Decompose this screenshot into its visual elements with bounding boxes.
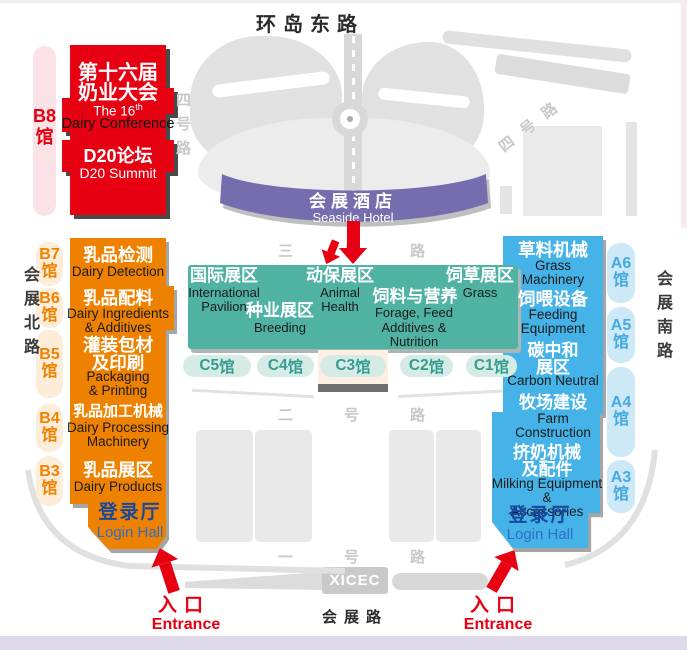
east-carbon-neutral-en: Carbon Neutral (496, 374, 610, 389)
west-dairy-products-zh: 乳品展区 (70, 461, 166, 480)
east-farm-construction-zh: 牧场建设 (503, 394, 603, 413)
road-label-south: 会展路 (322, 606, 388, 627)
c3-annex-base (318, 384, 388, 392)
east-feeding-equipment-en: Feeding Equipment (503, 308, 603, 336)
road-label-no1: 一号路 (278, 546, 476, 567)
hall-pill-c4: C4馆 (257, 355, 314, 377)
entrance-right-zh: 入口 (458, 596, 534, 617)
west-dairy-products-en: Dairy Products (64, 480, 172, 495)
west-login-hall-en: Login Hall (90, 525, 170, 542)
zone-forage-en: Forage, Feed Additives & Nutrition (368, 306, 460, 350)
hall-pill-c3: C3馆 (320, 355, 386, 377)
zone-forage-zh: 饲料与营养 (372, 288, 458, 307)
zone-animal-health-zh: 动保展区 (306, 267, 374, 286)
road-label-no3: 三号路 (278, 240, 476, 261)
conference-title-zh-2: 奶业大会 (70, 82, 166, 104)
summit-title-en: D20 Summit (70, 166, 166, 181)
hotel-name-zh: 会展酒店 (281, 193, 425, 212)
east-farm-construction-en: Farm Construction (503, 412, 603, 440)
east-carbon-neutral-zh: 碳中和 展区 (503, 342, 603, 376)
summit-title-zh: D20论坛 (70, 147, 166, 167)
east-milking-zh: 挤奶机械 及配件 (494, 444, 600, 478)
hotel-arrow-big-icon (339, 221, 367, 264)
conference-title-zh-1: 第十六届 (70, 62, 166, 84)
hall-pill-c5: C5馆 (183, 355, 251, 377)
zone-breeding-zh: 种业展区 (246, 302, 314, 321)
hall-pill-a3: A3馆 (607, 460, 635, 513)
hall-pill-b4: B4馆 (36, 404, 63, 452)
west-processing-en: Dairy Processing Machinery (64, 421, 172, 449)
entrance-left-en: Entrance (140, 616, 232, 634)
east-grass-machinery-en: Grass Machinery (503, 259, 603, 287)
entrance-right-en: Entrance (452, 616, 544, 634)
zone-international-zh: 国际展区 (189, 267, 259, 286)
west-dairy-detection-en: Dairy Detection (64, 265, 172, 280)
west-dairy-detection-zh: 乳品检测 (70, 246, 166, 265)
exhibition-venue-map: B8馆 B7馆 B6馆 B5馆 B4馆 B3馆 A6馆 A5馆 A4馆 A3馆 … (0, 0, 687, 650)
road-label-north: 环岛东路 (256, 8, 364, 37)
xicec-label: XICEC (322, 573, 388, 590)
west-processing-zh: 乳品加工机械 (64, 404, 172, 421)
hall-pill-a4: A4馆 (607, 367, 635, 457)
road-label-east: 会展南路 (650, 270, 674, 366)
west-login-hall-zh: 登录厅 (94, 503, 166, 524)
hall-pill-c2: C2馆 (400, 355, 453, 377)
east-login-hall-en: Login Hall (496, 527, 584, 544)
road-label-west: 会展北路 (17, 266, 41, 362)
hall-pill-b3: B3馆 (36, 456, 63, 506)
entrance-left-zh: 入口 (146, 596, 222, 617)
zone-breeding-en: Breeding (234, 321, 326, 335)
hall-pill-a6: A6馆 (607, 243, 635, 303)
conference-title-en-2: Dairy Conference (52, 117, 184, 133)
west-packaging-zh: 灌装包材 及印刷 (70, 336, 166, 372)
west-dairy-ingredients-en: Dairy Ingredients & Additives (62, 307, 174, 335)
hall-pill-a5: A5馆 (607, 307, 635, 363)
east-login-hall-zh: 登录厅 (500, 506, 580, 527)
road-label-no2: 二号路 (278, 404, 476, 425)
west-packaging-en: Packaging & Printing (70, 370, 166, 398)
